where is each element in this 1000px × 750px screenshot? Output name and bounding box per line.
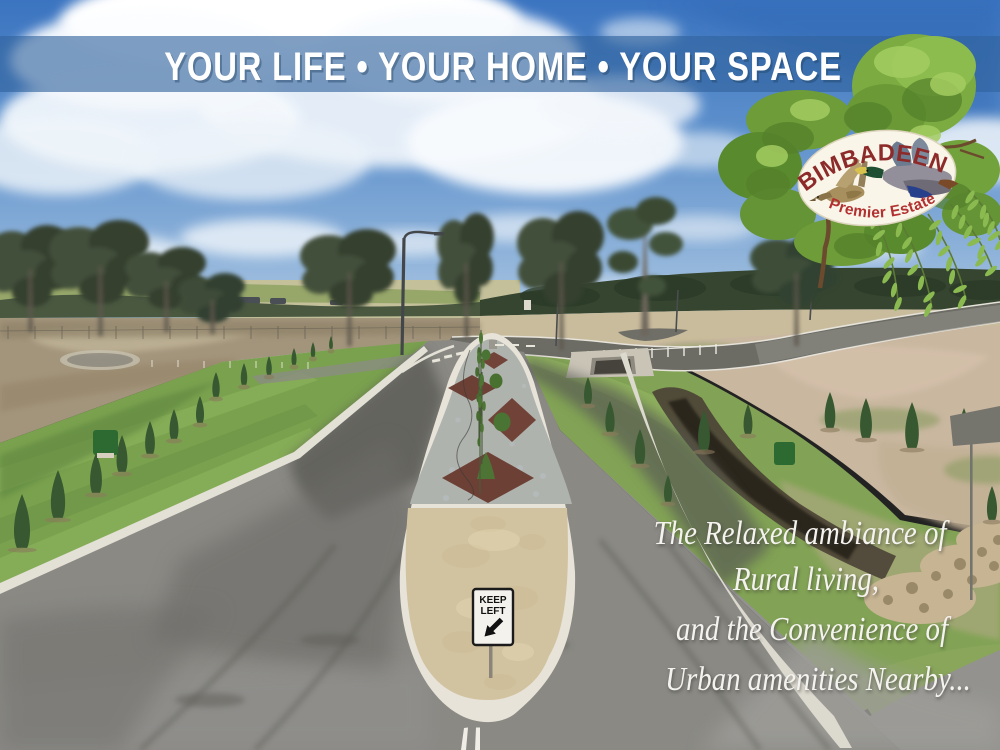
svg-text:and the Convenience of: and the Convenience of: [676, 610, 952, 648]
svg-text:YOUR LIFE • YOUR HOME • YOUR S: YOUR LIFE • YOUR HOME • YOUR SPACE: [164, 44, 842, 89]
svg-text:LEFT: LEFT: [481, 606, 506, 617]
svg-text:Urban amenities Nearby...: Urban amenities Nearby...: [665, 660, 971, 698]
svg-text:The Relaxed ambiance of: The Relaxed ambiance of: [654, 514, 951, 552]
svg-text:KEEP: KEEP: [479, 595, 507, 606]
svg-text:Rural living,: Rural living,: [732, 560, 879, 598]
